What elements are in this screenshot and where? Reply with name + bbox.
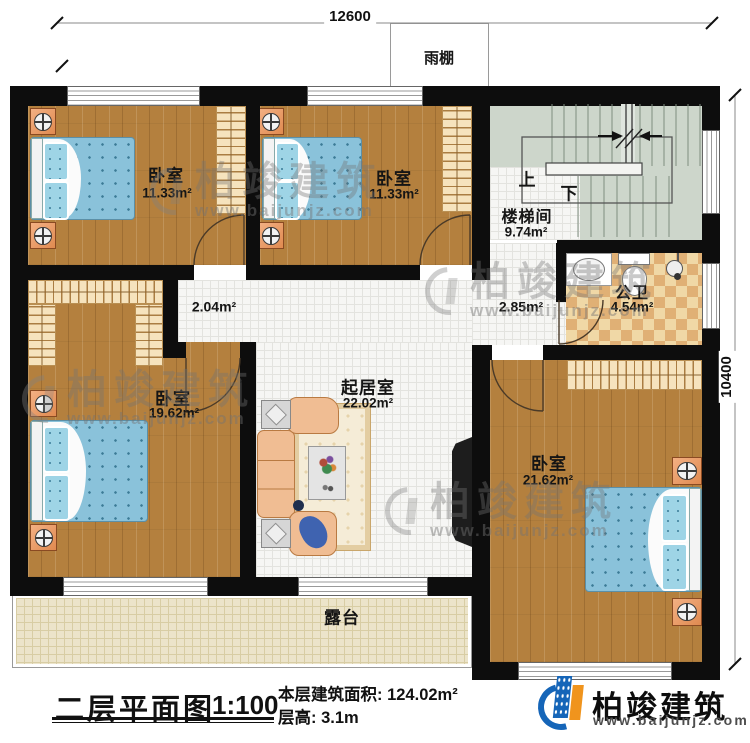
company-url: www.baijunjz.com [593,712,749,728]
stair-down-label: 下 [561,186,578,205]
room-area-bedroom-top-left: 11.33m² [142,187,192,202]
bed-left [30,420,148,522]
dimension-height: 10400 [719,351,736,403]
wall-bedroom-right-bottom [672,662,720,680]
wardrobe-bedroom-right [567,360,702,390]
coffee-table [308,446,346,500]
wardrobe-bedroom-top-mid [442,106,472,212]
stair-up-label: 上 [519,172,536,191]
walkin-closet-top [28,280,163,304]
wall-stair-bottom [557,240,702,253]
room-area-stairwell: 9.74m² [505,226,548,241]
nightstand [258,222,284,249]
room-area-bedroom-left: 19.62m² [149,407,199,422]
bed-right [585,487,702,592]
tv [452,437,472,547]
wall-stair-left [472,86,490,280]
patio-slider-living [298,577,428,596]
wall-bath-bottom [543,345,720,360]
wall-top [423,86,720,106]
terrace-label: 露台 [324,610,360,629]
nightstand [672,598,702,626]
title-underline [52,722,274,723]
wall-bottom [208,577,298,596]
bed-top-mid [262,137,362,220]
walkin-closet-left [28,304,56,366]
room-label-bedroom-right: 卧室 [531,456,567,475]
bed-top-left [30,137,135,220]
wall-bottom [10,577,63,596]
toilet-tank [618,253,650,265]
nightstand [672,457,702,485]
shower-knob [674,273,681,280]
window-bedroom-left [63,577,208,596]
side-table-bottom [261,519,291,548]
canopy-label: 雨棚 [424,51,454,68]
walkin-closet-right [135,304,163,366]
floor-height-text: 层高: 3.1m [278,704,359,728]
floor-area-text: 本层建筑面积: 124.02m² [278,681,458,705]
bathroom-sink [566,253,612,286]
side-table-top [261,400,291,429]
nightstand [30,390,57,417]
room-area-living: 22.02m² [343,397,393,412]
window-bathroom [702,263,720,329]
room-area-bathroom: 4.54m² [611,301,654,316]
nightstand [30,108,56,135]
armchair-top [287,397,339,434]
sofa-main [257,430,295,518]
hall-left-area: 2.04m² [192,299,236,314]
wall-top [200,86,307,106]
nightstand [258,108,284,135]
wall-bottom [428,577,472,596]
wall-bedrooms-bottom [246,265,420,280]
window-bedroom-top-mid [307,86,423,106]
nightstand [30,222,56,249]
wall-bedroom-right-bottom [472,662,518,680]
hall-right-area: 2.85m² [499,299,543,314]
wall-bedroom-right-left [472,345,490,662]
company-logo-icon [538,676,588,732]
window-stairwell [702,130,720,214]
wall-left [10,86,28,596]
person-head [293,500,304,511]
room-area-bedroom-top-mid: 11.33m² [369,188,419,203]
room-area-bedroom-right: 21.62m² [523,474,573,489]
wall-bedroom-divider [246,106,260,265]
floor-plan: 12600 10400 雨棚 卧室 11.33m² 卧室 11.33m² 楼梯间… [0,0,750,743]
bathroom-door-tile [556,302,566,345]
wall-living-left [240,342,256,577]
wall-bath-left [556,243,566,302]
wardrobe-bedroom-top-left [216,106,246,214]
room-label-bedroom-top-left: 卧室 [148,168,184,187]
nightstand [30,524,57,551]
dimension-width: 12600 [324,9,376,26]
window-bedroom-top-left [67,86,200,106]
wall-bedrooms-bottom [10,265,194,280]
terrace-floor [12,594,472,668]
title-underline [52,717,274,720]
wall-bedroom-left-top [163,342,186,358]
